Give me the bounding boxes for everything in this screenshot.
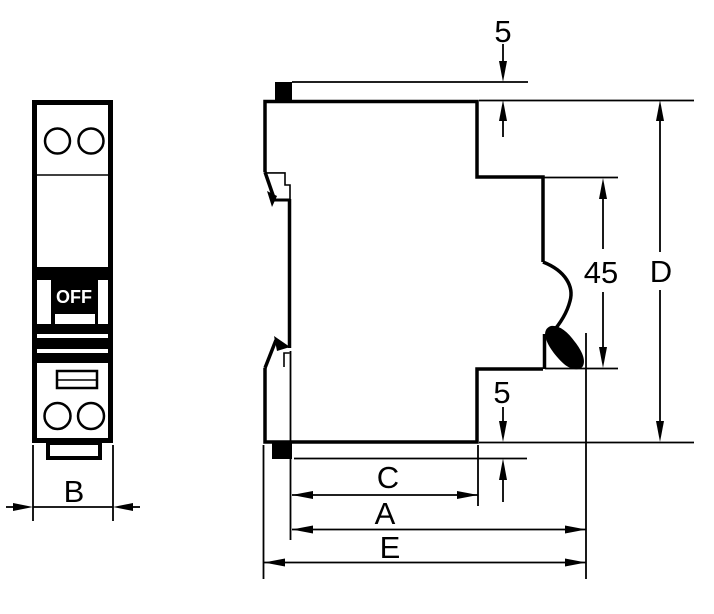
din-clip-bottom-spring [265,340,276,368]
dim-bottom-offset-5: 5 [493,375,510,502]
side-profile-front-arc [543,262,571,334]
terminal-screw-bottom-right-icon [78,403,104,429]
dim-front-height-45: 45 [584,178,618,368]
din-clip-tab [48,443,100,458]
arrow-5bot-up-icon [499,459,507,481]
toggle-lever [545,326,584,369]
arrow-a-right-icon [565,526,586,534]
toggle-switch: OFF [37,267,108,363]
side-profile-upper-outline [265,102,543,263]
toggle-stripe-1 [37,334,108,338]
arrow-d-up-icon [656,100,664,121]
terminal-screw-top-right-icon [79,129,104,154]
dim-label-D: D [650,254,672,289]
arrow-45-up-icon [599,178,607,199]
din-clip-bottom-notch [284,353,290,367]
terminal-screw-bottom-left-icon [45,403,71,429]
dim-label-45: 45 [584,255,618,290]
terminal-screw-top-left-icon [45,129,70,154]
dim-body-depth-A: A [292,496,586,534]
dim-front-depth-C: C [292,460,478,499]
dim-label-5-bottom: 5 [493,375,510,410]
arrow-e-right-icon [565,559,586,567]
dim-label-B: B [64,474,85,509]
mounting-foot-bottom [272,443,292,459]
dim-overall-height-D: D [650,100,672,442]
dim-label-A: A [375,496,396,531]
toggle-handle-slot [55,314,95,324]
side-view [265,82,584,459]
dim-overall-depth-E: E [264,530,586,567]
toggle-off-label: OFF [56,287,92,307]
arrow-a-left-icon [292,526,313,534]
arrow-c-right-icon [457,491,478,499]
toggle-lower-block [37,324,108,363]
din-clip-bottom [265,336,290,368]
arrow-c-left-icon [292,491,313,499]
arrow-d-down-icon [656,421,664,442]
arrow-b-left-icon [13,503,33,511]
mounting-foot-top [275,82,292,100]
dim-label-E: E [380,530,401,565]
din-clip-bottom-tip [274,336,290,351]
technical-drawing-canvas: OFF B [0,0,714,614]
arrow-5bot-down-icon [499,421,507,442]
dim-label-5-top: 5 [494,14,511,49]
arrow-5top-down-icon [499,61,507,82]
dim-top-offset-5: 5 [494,14,511,137]
arrow-e-left-icon [264,559,285,567]
arrow-5top-up-icon [499,100,507,121]
arrow-45-down-icon [599,347,607,368]
front-view: OFF [35,103,111,459]
din-clip-top [265,172,290,207]
arrow-b-right-icon [113,503,133,511]
toggle-stripe-2 [37,349,108,353]
dim-label-C: C [377,460,399,495]
